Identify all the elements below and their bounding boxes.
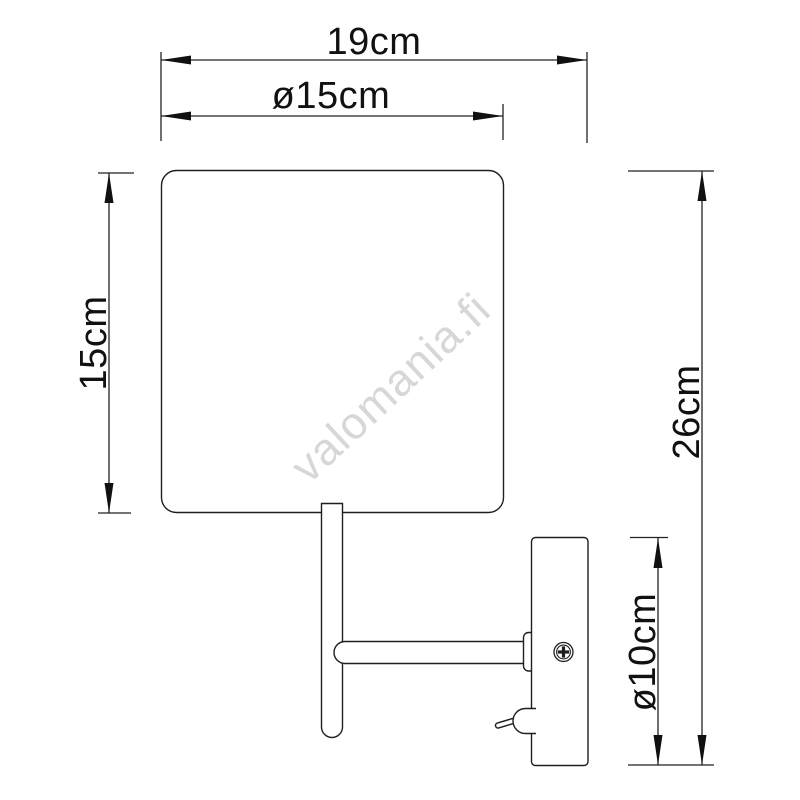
stem-rod: [322, 504, 343, 738]
dimension-shade-height: 15cm: [73, 173, 134, 513]
wall-lamp-dimension-diagram: valomania.fi: [0, 0, 800, 800]
arrowhead-right-icon: [557, 56, 587, 65]
arrowhead-down-icon: [105, 483, 114, 513]
dim-label-overall-height: 26cm: [666, 365, 708, 460]
arrowhead-up-icon: [654, 538, 663, 568]
arrowhead-down-icon: [654, 735, 663, 765]
support-arm: [334, 642, 530, 664]
watermark-text: valomania.fi: [281, 283, 500, 492]
dim-label-backplate-diameter: ø10cm: [622, 593, 664, 712]
toggle-switch: [498, 709, 536, 734]
arrowhead-down-icon: [698, 735, 707, 765]
arrowhead-left-icon: [161, 112, 191, 121]
screw-icon: [554, 643, 573, 662]
dim-label-shade-diameter: ø15cm: [272, 75, 391, 117]
arrowhead-up-icon: [698, 171, 707, 201]
dim-label-shade-height: 15cm: [73, 296, 115, 391]
arrowhead-up-icon: [105, 173, 114, 203]
dim-label-overall-width: 19cm: [327, 21, 422, 63]
arrowhead-right-icon: [473, 112, 503, 121]
arrowhead-left-icon: [161, 56, 191, 65]
diagram-canvas: valomania.fi: [0, 0, 800, 800]
dimension-backplate-diameter: ø10cm: [622, 538, 668, 766]
dimension-shade-diameter: ø15cm: [161, 75, 503, 140]
